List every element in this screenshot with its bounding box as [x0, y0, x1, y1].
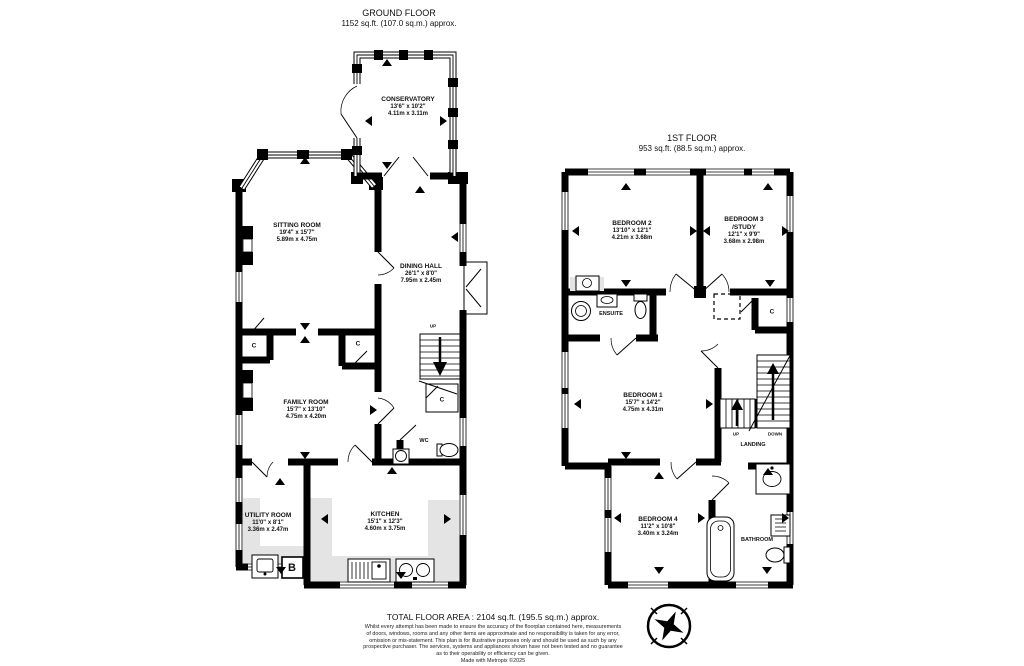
ground-floor-title-text: GROUND FLOOR: [341, 8, 456, 19]
made-with-credit: Made with Metropix ©2025: [313, 658, 673, 665]
gf-doors: [252, 252, 416, 477]
hatch-outline: [714, 294, 740, 319]
porch: [459, 262, 487, 314]
ground-floor-area-text: 1152 sq.ft. (107.0 sq.m.) approx.: [341, 19, 456, 29]
wc-label: WC: [419, 438, 428, 444]
room-label-bedroom-2: BEDROOM 2 13'10" x 12'1" 4.21m x 3.68m: [612, 220, 653, 242]
first-floor-title: 1ST FLOOR 953 sq.ft. (88.5 sq.m.) approx…: [639, 133, 746, 154]
boiler-label: B: [288, 562, 296, 574]
ff-staircase: [720, 352, 792, 431]
ff-down-label: DOWN: [768, 432, 782, 437]
utility-sink-icon: [252, 555, 278, 578]
room-label-bedroom-1: BEDROOM 1 15'7" x 14'2" 4.75m x 4.31m: [623, 392, 664, 414]
disclaimer-line: prospective purchaser. The services, sys…: [313, 644, 673, 651]
shower-icon: [572, 302, 591, 321]
vanity-basin-icon: [576, 276, 599, 291]
disclaimer-line: of doors, windows, rooms and any other i…: [313, 631, 673, 638]
room-label-family-room: FAMILY ROOM 15'7" x 13'10" 4.75m x 4.20m: [283, 399, 328, 421]
room-label-bedroom-3: BEDROOM 3 /STUDY 12'1" x 9'9" 3.68m x 2.…: [724, 216, 765, 246]
bathroom-toilet-icon: [766, 547, 790, 563]
ensuite-basin-icon: [597, 294, 617, 307]
landing-label: LANDING: [740, 442, 765, 448]
chimney-breast-family: [242, 370, 253, 411]
room-label-dining-hall: DINING HALL 26'1" x 8'0" 7.95m x 2.45m: [400, 263, 442, 285]
hob-icon: [396, 559, 434, 582]
floorplan-drawing: [0, 0, 1024, 666]
kitchen-sink-icon: [348, 559, 390, 582]
chimney-breast-sitting: [242, 226, 253, 265]
ff-closet-label: C: [770, 309, 775, 316]
gf-up-label: UP: [430, 324, 436, 329]
bathroom-fixtures: [707, 464, 790, 581]
ensuite-label: ENSUITE: [599, 311, 623, 317]
gf-closet-label-3: C: [440, 397, 445, 404]
ensuite-toilet-icon: [634, 294, 647, 319]
bathroom-sink-icon: [756, 464, 790, 494]
disclaimer-line: as to their operability or efficiency ca…: [313, 651, 673, 658]
room-label-bedroom-4: BEDROOM 4 11'2" x 10'8" 3.40m x 3.24m: [638, 516, 679, 538]
gf-closet-label-1: C: [252, 343, 257, 350]
disclaimer-line: omission or mis-statement. This plan is …: [313, 638, 673, 645]
room-label-conservatory: CONSERVATORY 13'6" x 10'2" 4.11m x 3.11m: [381, 96, 434, 118]
ground-floor-plan: [232, 50, 487, 589]
ff-doors: [611, 274, 755, 500]
gf-closet-label-2: C: [356, 341, 361, 348]
first-floor-title-text: 1ST FLOOR: [639, 133, 746, 144]
ground-floor-title: GROUND FLOOR 1152 sq.ft. (107.0 sq.m.) a…: [341, 8, 456, 29]
ff-up-label: UP: [733, 432, 739, 437]
first-floor-area-text: 953 sq.ft. (88.5 sq.m.) approx.: [639, 144, 746, 154]
disclaimer: Whilst every attempt has been made to en…: [313, 624, 673, 665]
disclaimer-line: Whilst every attempt has been made to en…: [313, 624, 673, 631]
bathroom-label: BATHROOM: [741, 537, 773, 543]
bath-icon: [707, 517, 734, 581]
room-label-kitchen: KITCHEN 15'1" x 12'3" 4.60m x 3.75m: [365, 511, 406, 533]
room-label-utility-room: UTILITY ROOM 11'0" x 8'1" 3.36m x 2.47m: [245, 512, 291, 534]
sink-icon: [393, 449, 409, 464]
toilet-icon: [437, 444, 458, 457]
floorplan-page: GROUND FLOOR 1152 sq.ft. (107.0 sq.m.) a…: [0, 0, 1024, 666]
total-floor-area: TOTAL FLOOR AREA : 2104 sq.ft. (195.5 sq…: [387, 612, 599, 622]
room-label-sitting-room: SITTING ROOM 19'4" x 15'7" 5.89m x 4.75m: [273, 222, 321, 244]
